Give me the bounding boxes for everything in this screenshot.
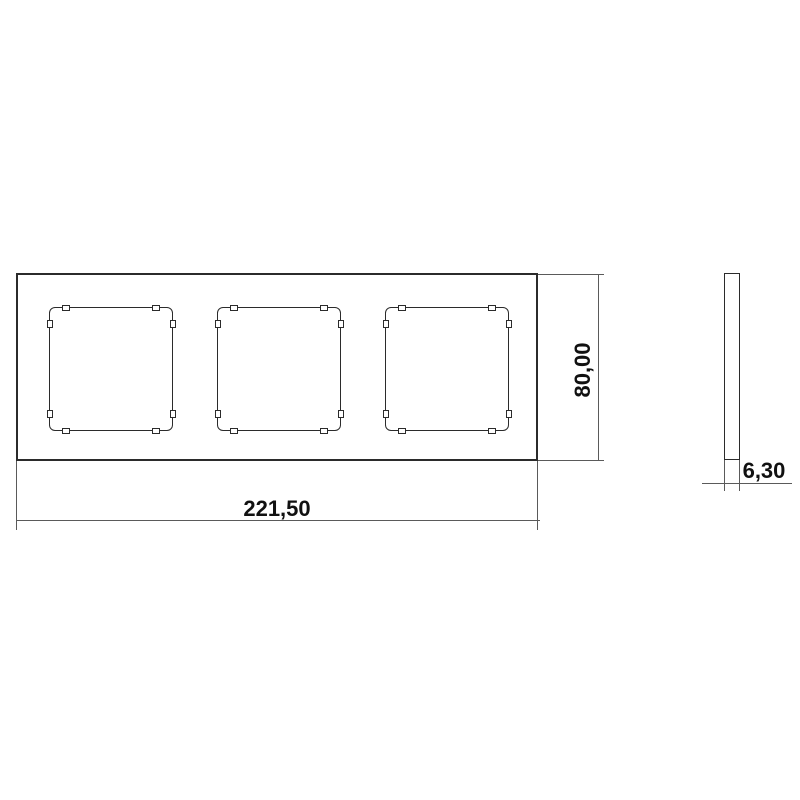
front-view-frame-outline	[16, 273, 538, 461]
frame-opening-2	[217, 307, 341, 431]
clip-notch	[488, 305, 496, 311]
clip-notch	[383, 320, 389, 328]
dimension-line-thickness	[702, 483, 792, 484]
clip-notch	[47, 410, 53, 418]
side-view-outline	[724, 273, 740, 460]
clip-notch	[230, 305, 238, 311]
clip-notch	[152, 305, 160, 311]
extension-line-side-right	[739, 460, 740, 491]
clip-notch	[506, 410, 512, 418]
height-dimension-label: 80,00	[572, 342, 594, 397]
dimension-line-height	[598, 274, 599, 460]
clip-notch	[215, 410, 221, 418]
clip-notch	[47, 320, 53, 328]
clip-notch	[170, 320, 176, 328]
clip-notch	[215, 320, 221, 328]
extension-line-bottom-right	[538, 460, 604, 461]
clip-notch	[338, 320, 344, 328]
clip-notch	[488, 428, 496, 434]
clip-notch	[338, 410, 344, 418]
technical-drawing-canvas: 221,50 80,00 6,30	[0, 0, 800, 800]
width-dimension-label: 221,50	[243, 498, 310, 520]
clip-notch	[320, 428, 328, 434]
clip-notch	[398, 428, 406, 434]
clip-notch	[320, 305, 328, 311]
extension-line-top-right	[538, 274, 604, 275]
frame-opening-1	[49, 307, 173, 431]
extension-line-side-left	[724, 460, 725, 491]
clip-notch	[383, 410, 389, 418]
clip-notch	[170, 410, 176, 418]
clip-notch	[152, 428, 160, 434]
clip-notch	[230, 428, 238, 434]
clip-notch	[398, 305, 406, 311]
clip-notch	[62, 305, 70, 311]
frame-opening-3	[385, 307, 509, 431]
clip-notch	[62, 428, 70, 434]
clip-notch	[506, 320, 512, 328]
thickness-dimension-label: 6,30	[743, 460, 786, 482]
